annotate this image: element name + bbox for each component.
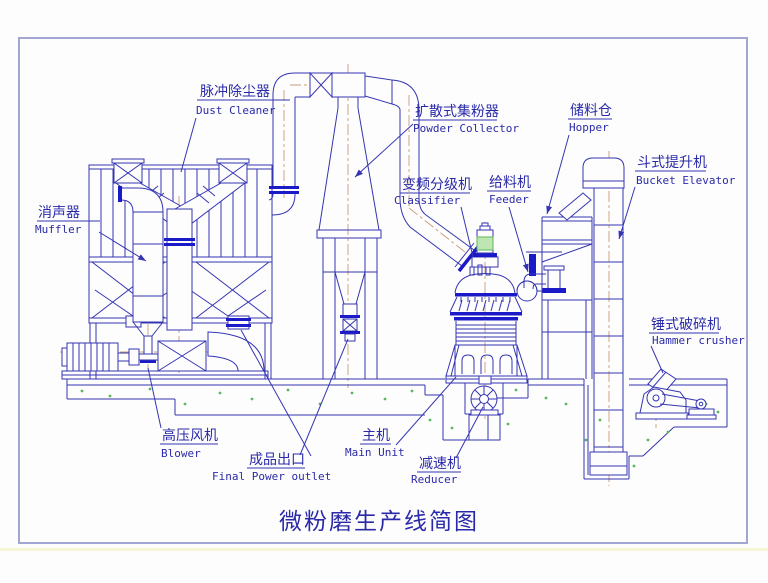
motor-pulley (696, 399, 706, 409)
label-main-unit: 主机 Main Unit (345, 428, 405, 459)
label-blower-zh: 高压风机 (162, 427, 218, 444)
drawing-sheet: 脉冲除尘器 Dust Cleaner 消声器 Muffler 扩散式集粉器 Po… (0, 0, 768, 583)
duct-cone (365, 76, 392, 104)
suction-pipe (167, 209, 192, 330)
label-blower-en: Blower (161, 447, 201, 460)
hammer-crusher (636, 369, 716, 419)
hopper (542, 217, 592, 379)
label-reducer: 减速机 Reducer (411, 456, 461, 486)
blower-discharge-elbow (208, 332, 264, 371)
production-line-diagram: 脉冲除尘器 Dust Cleaner 消声器 Muffler 扩散式集粉器 Po… (0, 0, 768, 583)
filter-connector-left (112, 159, 144, 183)
label-hammer-crusher: 锤式破碎机 Hammer crusher (649, 317, 745, 347)
label-hammer-crusher-zh: 锤式破碎机 (651, 317, 721, 333)
rotary-valve (340, 319, 360, 341)
label-reducer-zh: 减速机 (419, 456, 461, 472)
label-feeder-en: Feeder (489, 193, 529, 206)
feeder-motor (529, 254, 536, 276)
label-dust-cleaner-en: Dust Cleaner (196, 104, 276, 117)
sheet-edge-line (0, 548, 768, 551)
label-hopper-zh: 储料仓 (570, 103, 612, 119)
label-main-unit-en: Main Unit (345, 446, 405, 459)
label-feeder: 给料机 Feeder (487, 175, 531, 206)
diagram-title: 微粉磨生产线简图 (279, 509, 479, 535)
classifier-motor (472, 223, 498, 267)
dust-outlet-right (226, 316, 251, 329)
label-main-unit-zh: 主机 (362, 428, 390, 444)
label-bucket-elevator: 斗式提升机 Bucket Elevator (635, 155, 736, 187)
blower-motor (67, 343, 118, 371)
filter-connector-right (217, 159, 249, 183)
label-powder-collector-zh: 扩散式集粉器 (415, 103, 499, 120)
label-hopper-en: Hopper (569, 121, 609, 134)
duct-valve (310, 73, 332, 97)
label-classifier-zh: 变频分级机 (402, 177, 472, 193)
label-classifier-en: Classifier (394, 194, 461, 207)
label-feeder-zh: 给料机 (489, 175, 531, 191)
label-final-outlet-en: Final Power outlet (212, 470, 331, 483)
label-powder-collector: 扩散式集粉器 Powder Collector (413, 103, 519, 135)
label-final-outlet: 成品出口 Final Power outlet (212, 452, 331, 483)
label-muffler-en: Muffler (35, 223, 82, 236)
label-reducer-en: Reducer (411, 473, 458, 486)
elevator-boot (590, 452, 627, 475)
muffler-elbow (121, 188, 163, 212)
collector-cap (332, 73, 365, 97)
main-unit (446, 265, 545, 383)
label-classifier: 变频分级机 Classifier (394, 177, 472, 207)
label-muffler: 消声器 Muffler (35, 205, 100, 236)
label-hammer-crusher-en: Hammer crusher (652, 334, 745, 347)
label-bucket-elevator-zh: 斗式提升机 (637, 155, 707, 171)
label-blower: 高压风机 Blower (160, 427, 218, 460)
classifier-motor-band (477, 237, 493, 250)
elevator-chute (559, 193, 591, 220)
label-muffler-zh: 消声器 (38, 205, 80, 221)
label-final-outlet-zh: 成品出口 (249, 452, 305, 468)
label-dust-cleaner-zh: 脉冲除尘器 (200, 84, 270, 100)
label-powder-collector-en: Powder Collector (413, 122, 519, 135)
elevator-head (583, 158, 624, 188)
label-hopper: 储料仓 Hopper (568, 103, 612, 134)
bucket-elevator (559, 158, 627, 475)
blower (62, 332, 268, 379)
label-dust-cleaner: 脉冲除尘器 Dust Cleaner (196, 84, 290, 117)
label-bucket-elevator-en: Bucket Elevator (636, 174, 736, 187)
